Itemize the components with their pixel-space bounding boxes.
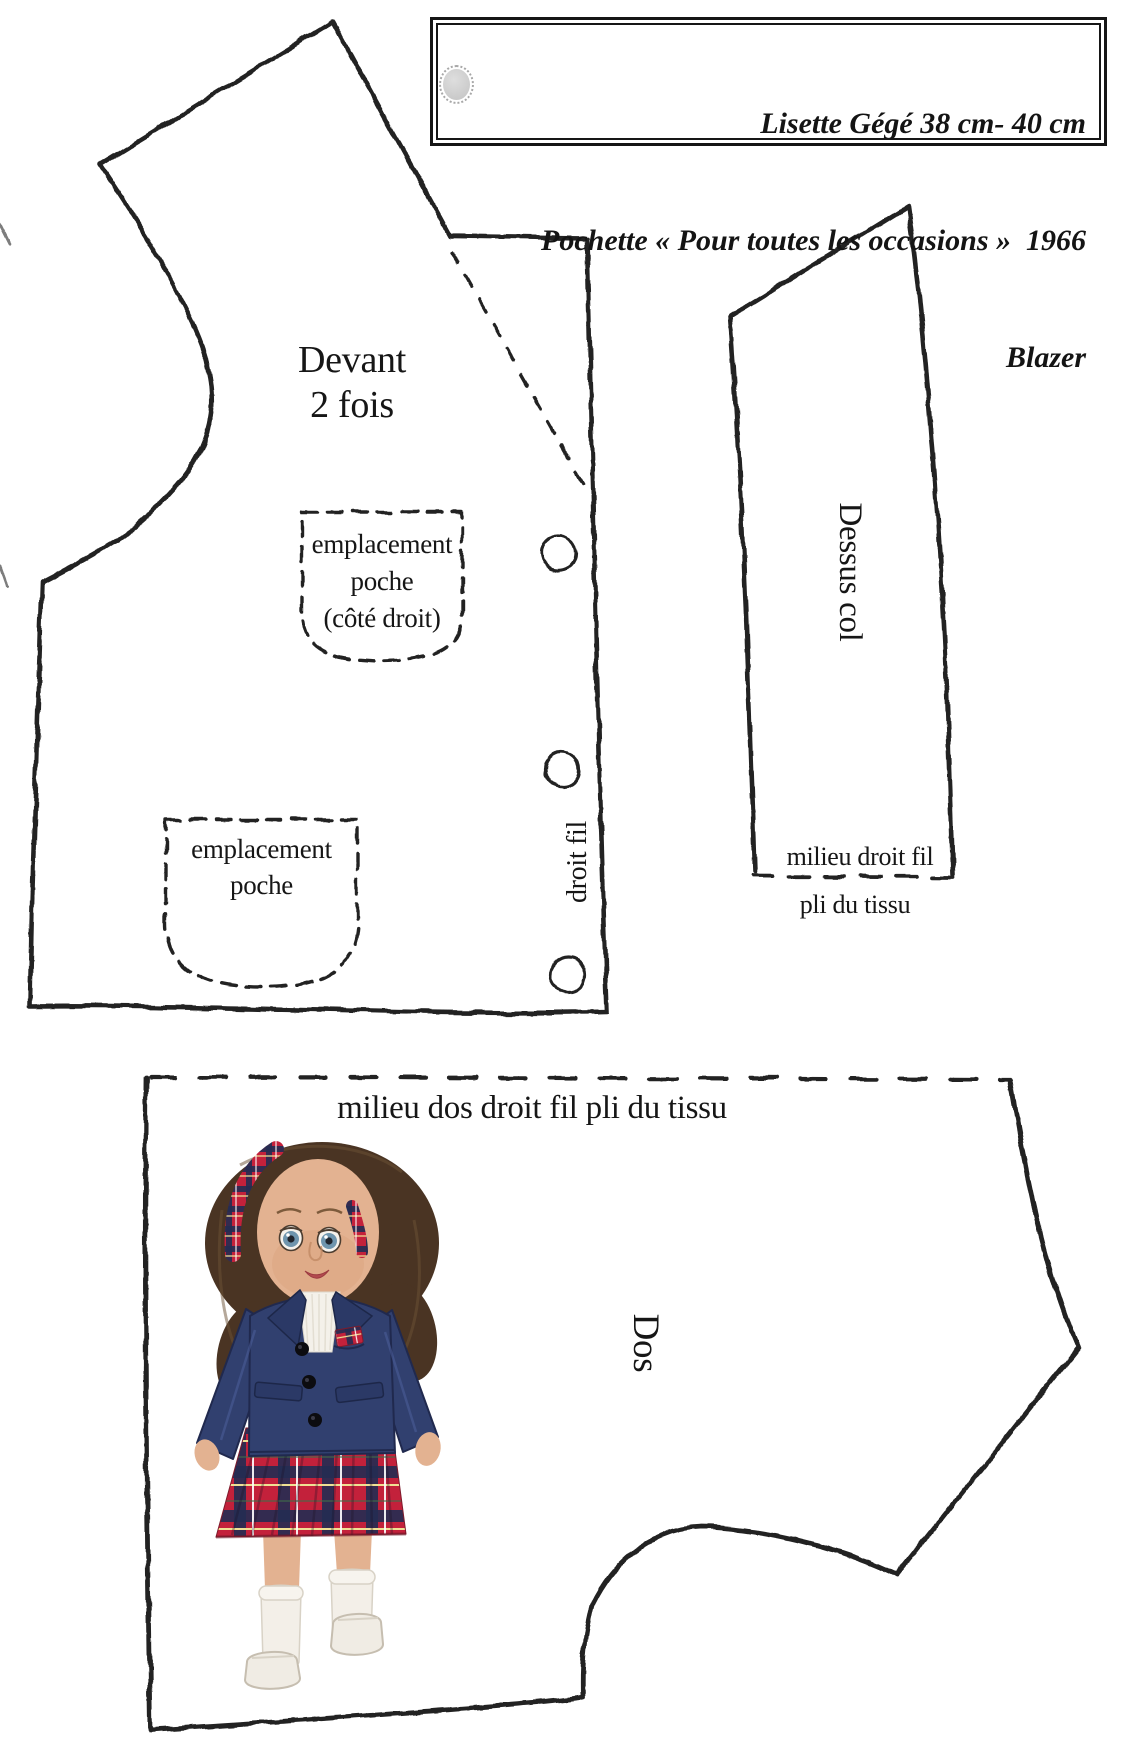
- punch-hole-icon: [443, 69, 470, 100]
- buttonhole-circle: [551, 958, 585, 992]
- doll-hip-pocket-left: [254, 1382, 302, 1401]
- back-fold-label: milieu dos droit fil pli du tissu: [262, 1088, 802, 1128]
- pocket-right-line2: poche: [302, 563, 462, 600]
- collar-piece-label: Dessus col: [829, 467, 871, 677]
- collar-fold-dashed-line: [753, 876, 955, 877]
- title-text: Lisette Gégé 38 cm- 40 cm Pochette « Pou…: [436, 23, 1101, 140]
- buttonhole-circle: [541, 536, 575, 570]
- front-piece-label: Devant 2 fois: [212, 338, 492, 428]
- title-line-1: Lisette Gégé 38 cm- 40 cm: [438, 104, 1086, 143]
- front-piece-quantity: 2 fois: [212, 383, 492, 428]
- collar-grainline-label: milieu droit fil: [740, 841, 980, 873]
- pocket-left-line1: emplacement: [166, 831, 357, 867]
- doll-photo: [190, 1142, 445, 1689]
- pocket-right-label: emplacement poche (côté droit): [302, 526, 462, 637]
- front-piece-name: Devant: [212, 338, 492, 383]
- title-box: Lisette Gégé 38 cm- 40 cm Pochette « Pou…: [430, 17, 1107, 146]
- pocket-left-line2: poche: [166, 867, 357, 903]
- doll-shoe-right: [331, 1614, 383, 1655]
- collar-fold-label: pli du tissu: [735, 889, 975, 921]
- title-line-3: Blazer: [438, 338, 1086, 377]
- print-artifact: [0, 566, 7, 586]
- back-piece-label: Dos: [623, 1288, 667, 1398]
- title-line-2: Pochette « Pour toutes les occasions » 1…: [438, 221, 1086, 260]
- doll-shoe-left: [245, 1652, 300, 1689]
- back-fold-dashed-line: [150, 1077, 1010, 1079]
- pocket-right-line3: (côté droit): [302, 600, 462, 637]
- front-grainline-label: droit fil: [560, 777, 596, 947]
- pocket-left-label: emplacement poche: [166, 831, 357, 903]
- doll-eye-left: [280, 1226, 303, 1251]
- print-artifact: [0, 224, 10, 244]
- pocket-right-line1: emplacement: [302, 526, 462, 563]
